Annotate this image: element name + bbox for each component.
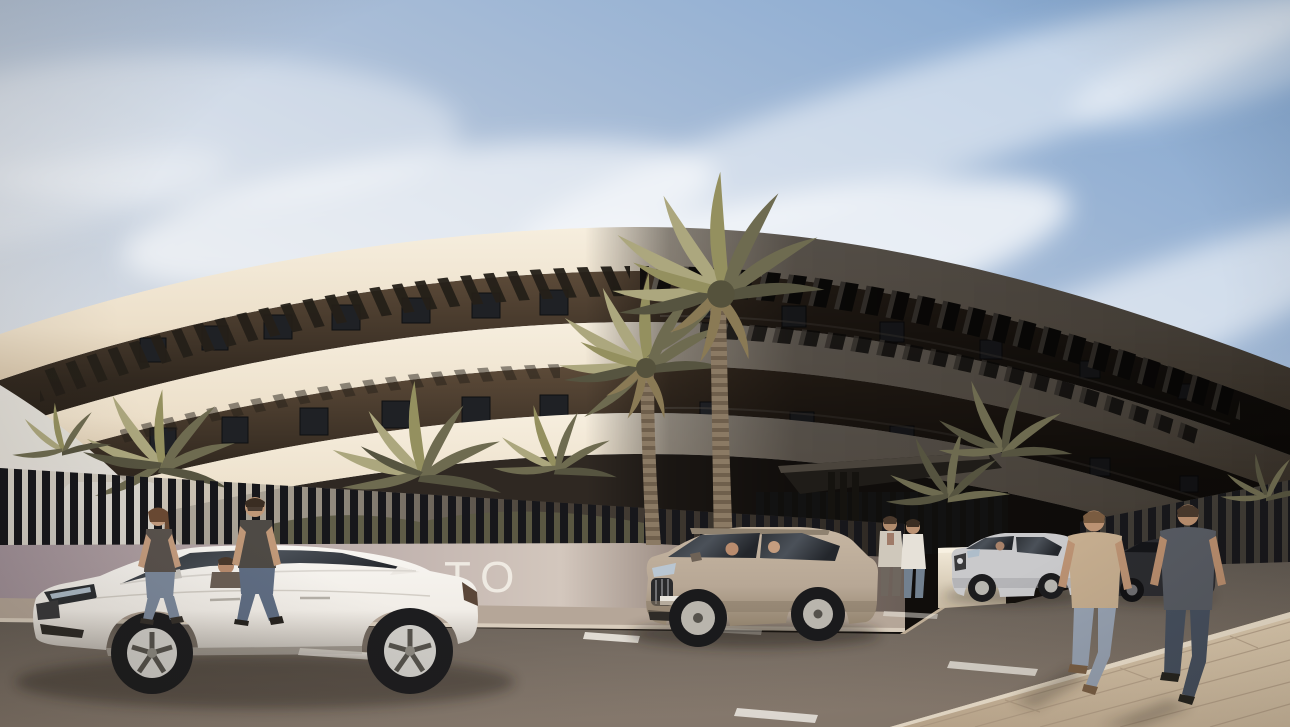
scarf [887,533,894,545]
shirt [901,534,926,569]
driver-head [726,543,739,556]
rear-wheel [367,608,453,694]
tee [1160,527,1216,610]
driver-head [996,542,1005,551]
jeans [239,568,275,594]
star-emblem [957,558,963,564]
architectural-render: TO [0,0,1290,727]
tee [1068,532,1122,608]
jeans [145,572,175,598]
sunglasses [247,507,263,511]
passenger-head [768,541,780,553]
